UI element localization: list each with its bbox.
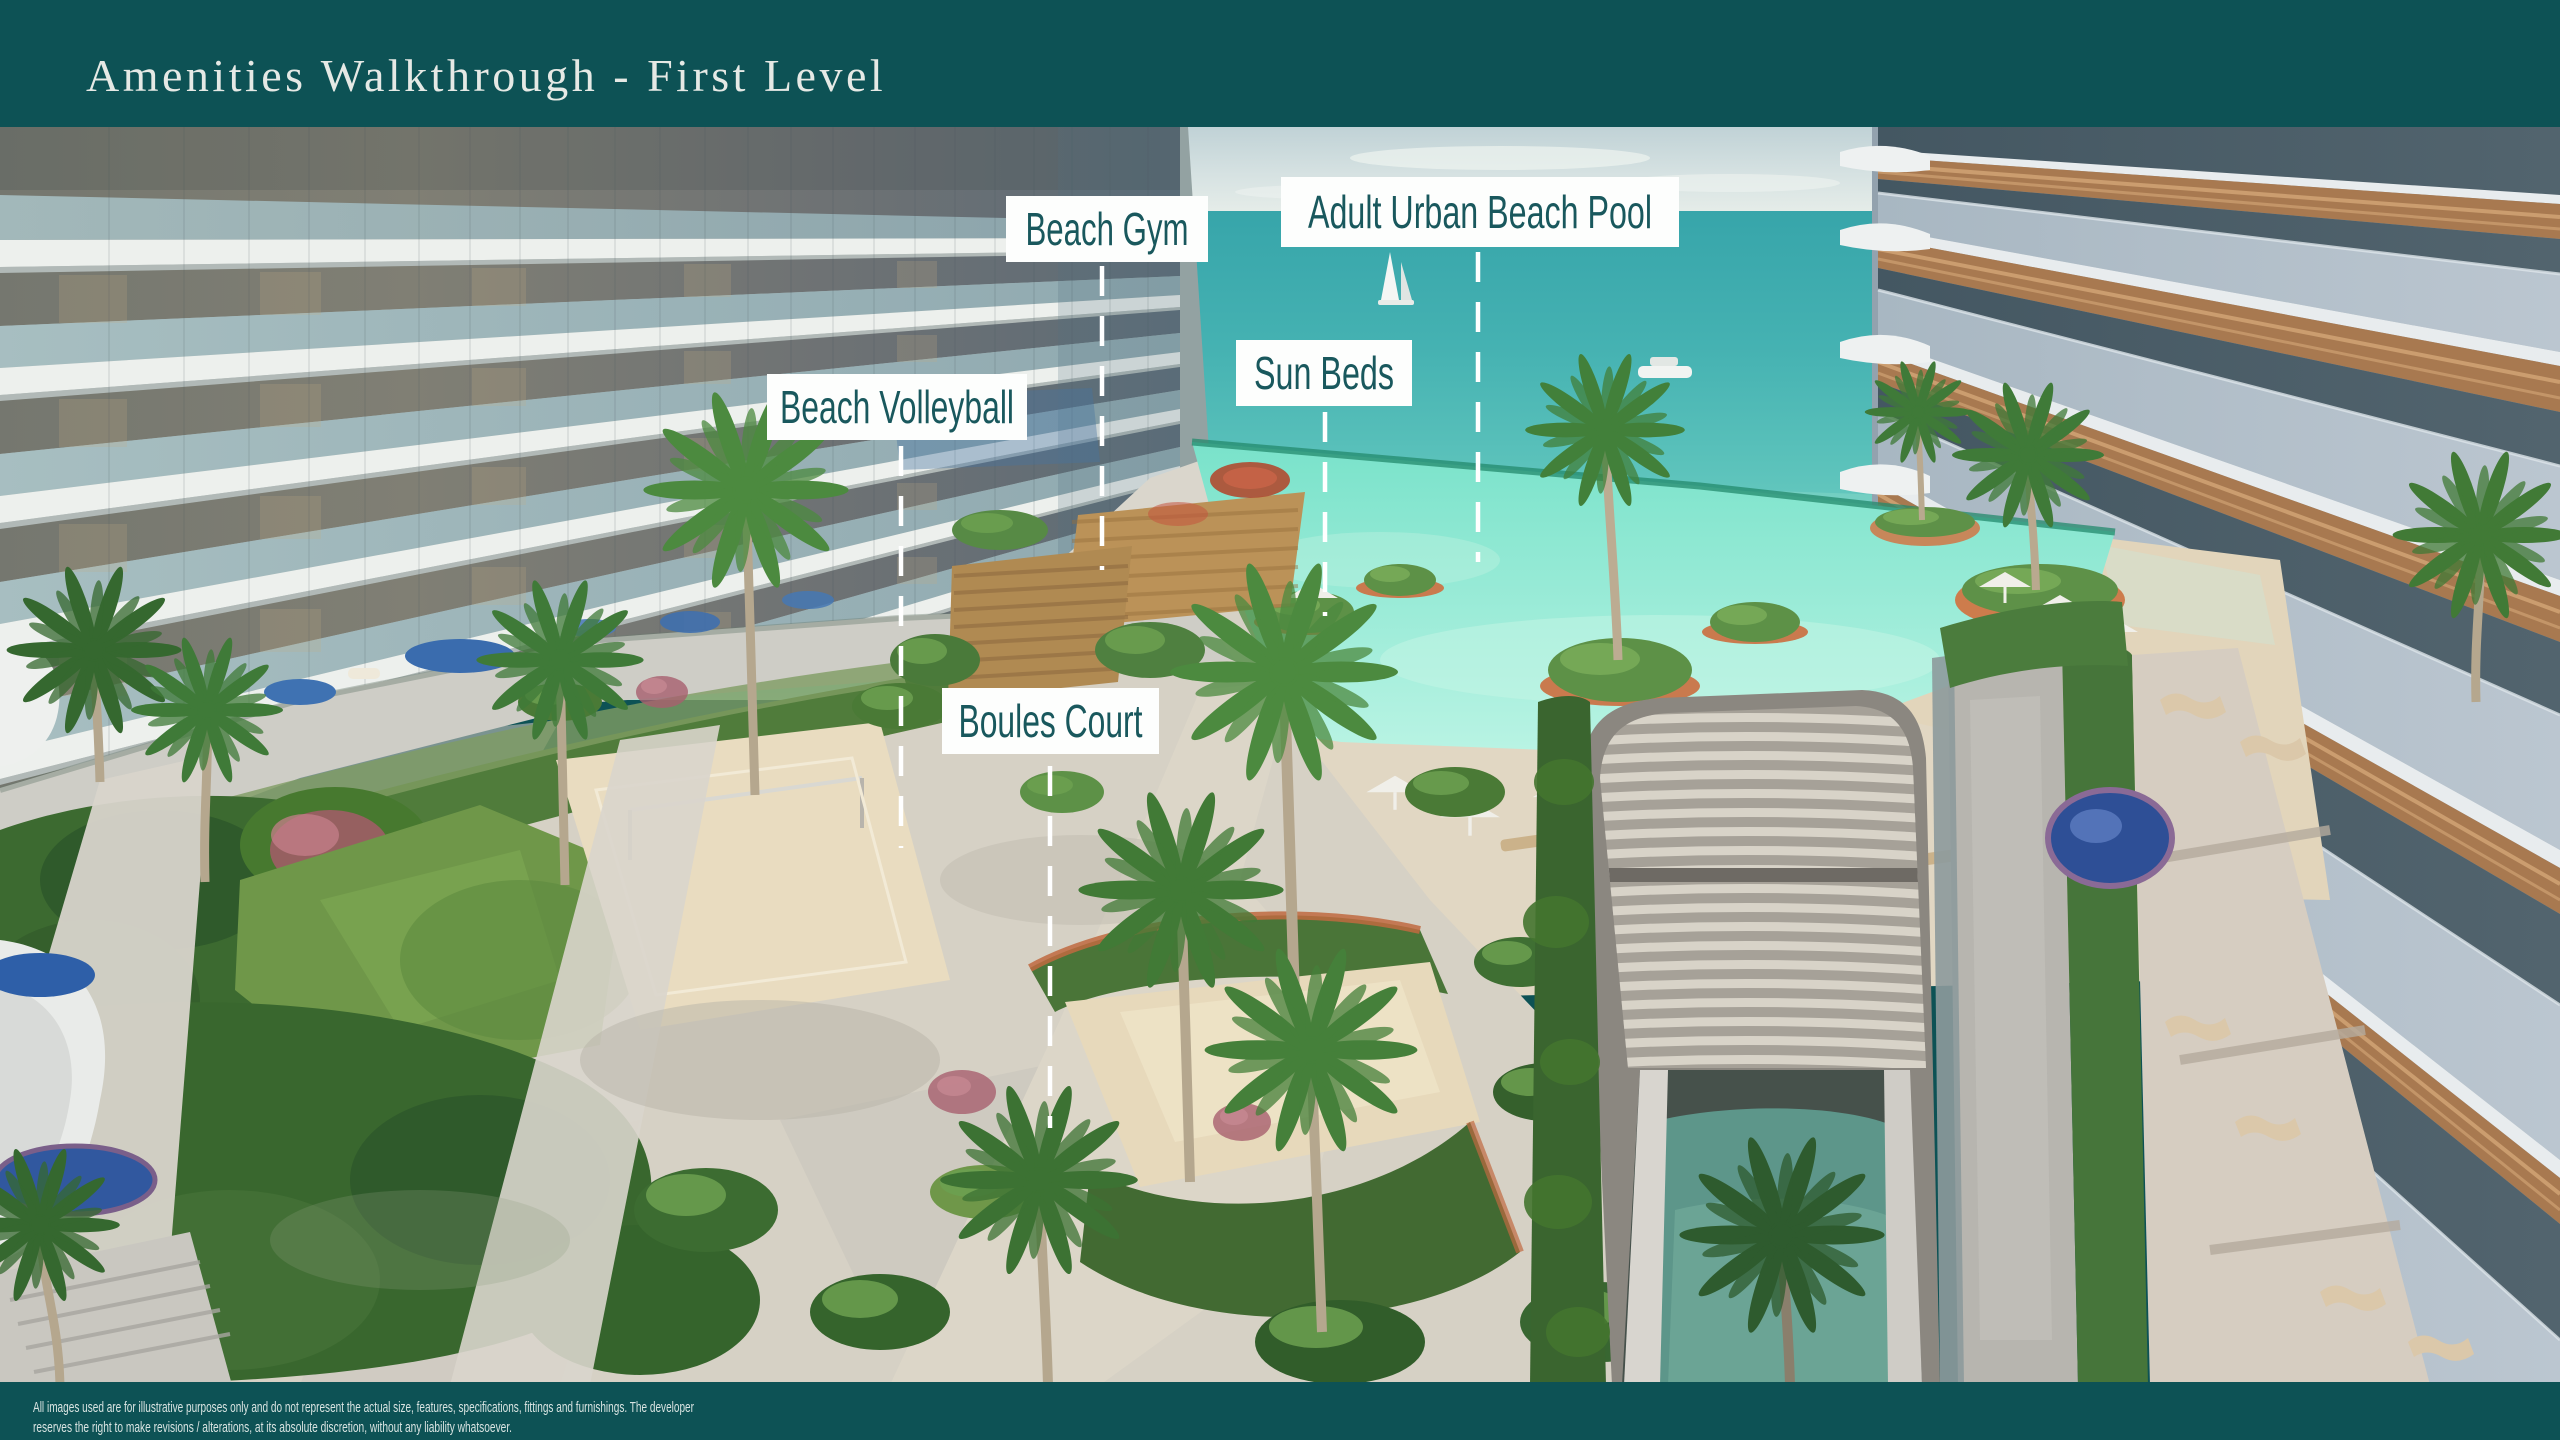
svg-text:All images used are for illust: All images used are for illustrative pur… <box>33 1399 694 1416</box>
svg-text:Sun Beds: Sun Beds <box>1254 347 1394 399</box>
svg-text:Beach Gym: Beach Gym <box>1026 203 1189 255</box>
svg-text:Beach Volleyball: Beach Volleyball <box>780 381 1014 433</box>
svg-text:Adult Urban Beach Pool: Adult Urban Beach Pool <box>1308 186 1652 238</box>
svg-text:reserves the right to make rev: reserves the right to make revisions / a… <box>33 1419 512 1436</box>
svg-text:Amenities Walkthrough - First: Amenities Walkthrough - First Level <box>86 50 886 101</box>
svg-text:Boules Court: Boules Court <box>959 695 1143 747</box>
